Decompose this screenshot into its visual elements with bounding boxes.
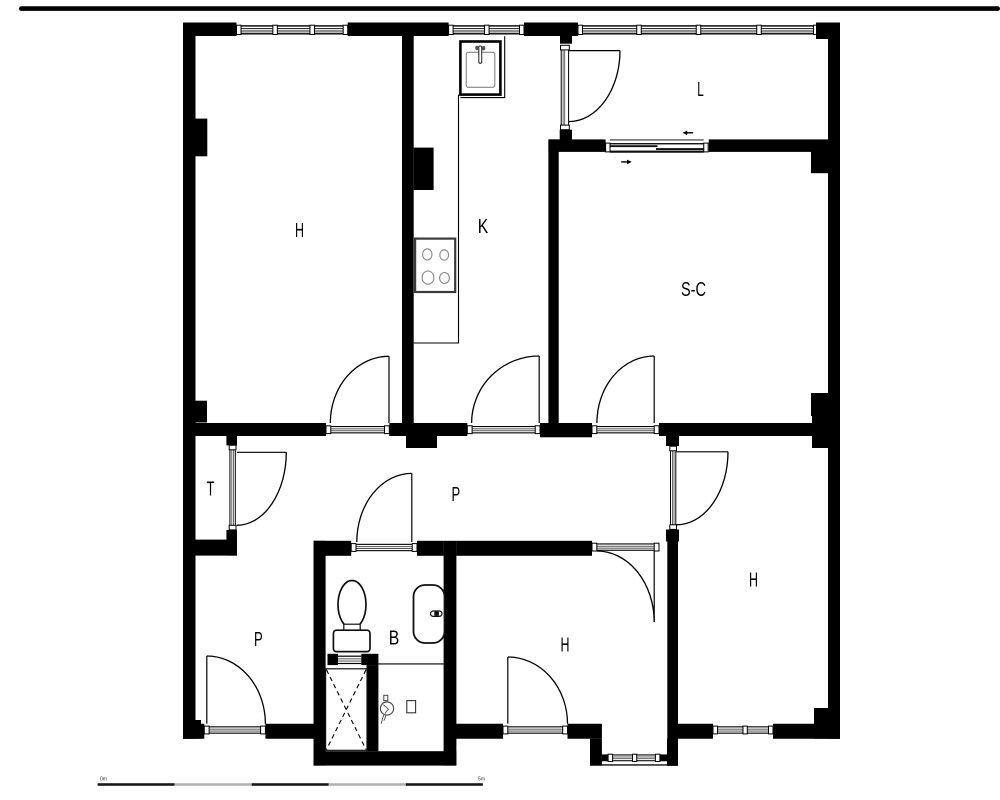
svg-text:B: B: [389, 628, 400, 650]
svg-text:T: T: [207, 478, 215, 500]
svg-text:H: H: [295, 220, 304, 242]
svg-text:H: H: [749, 570, 758, 592]
svg-text:L: L: [697, 79, 704, 101]
svg-text:5m: 5m: [478, 777, 485, 783]
svg-text:S-C: S-C: [681, 279, 706, 301]
svg-text:P: P: [254, 629, 263, 651]
svg-text:H: H: [561, 635, 570, 657]
svg-text:P: P: [452, 484, 461, 506]
svg-text:K: K: [478, 216, 489, 238]
svg-text:0m: 0m: [100, 777, 107, 783]
